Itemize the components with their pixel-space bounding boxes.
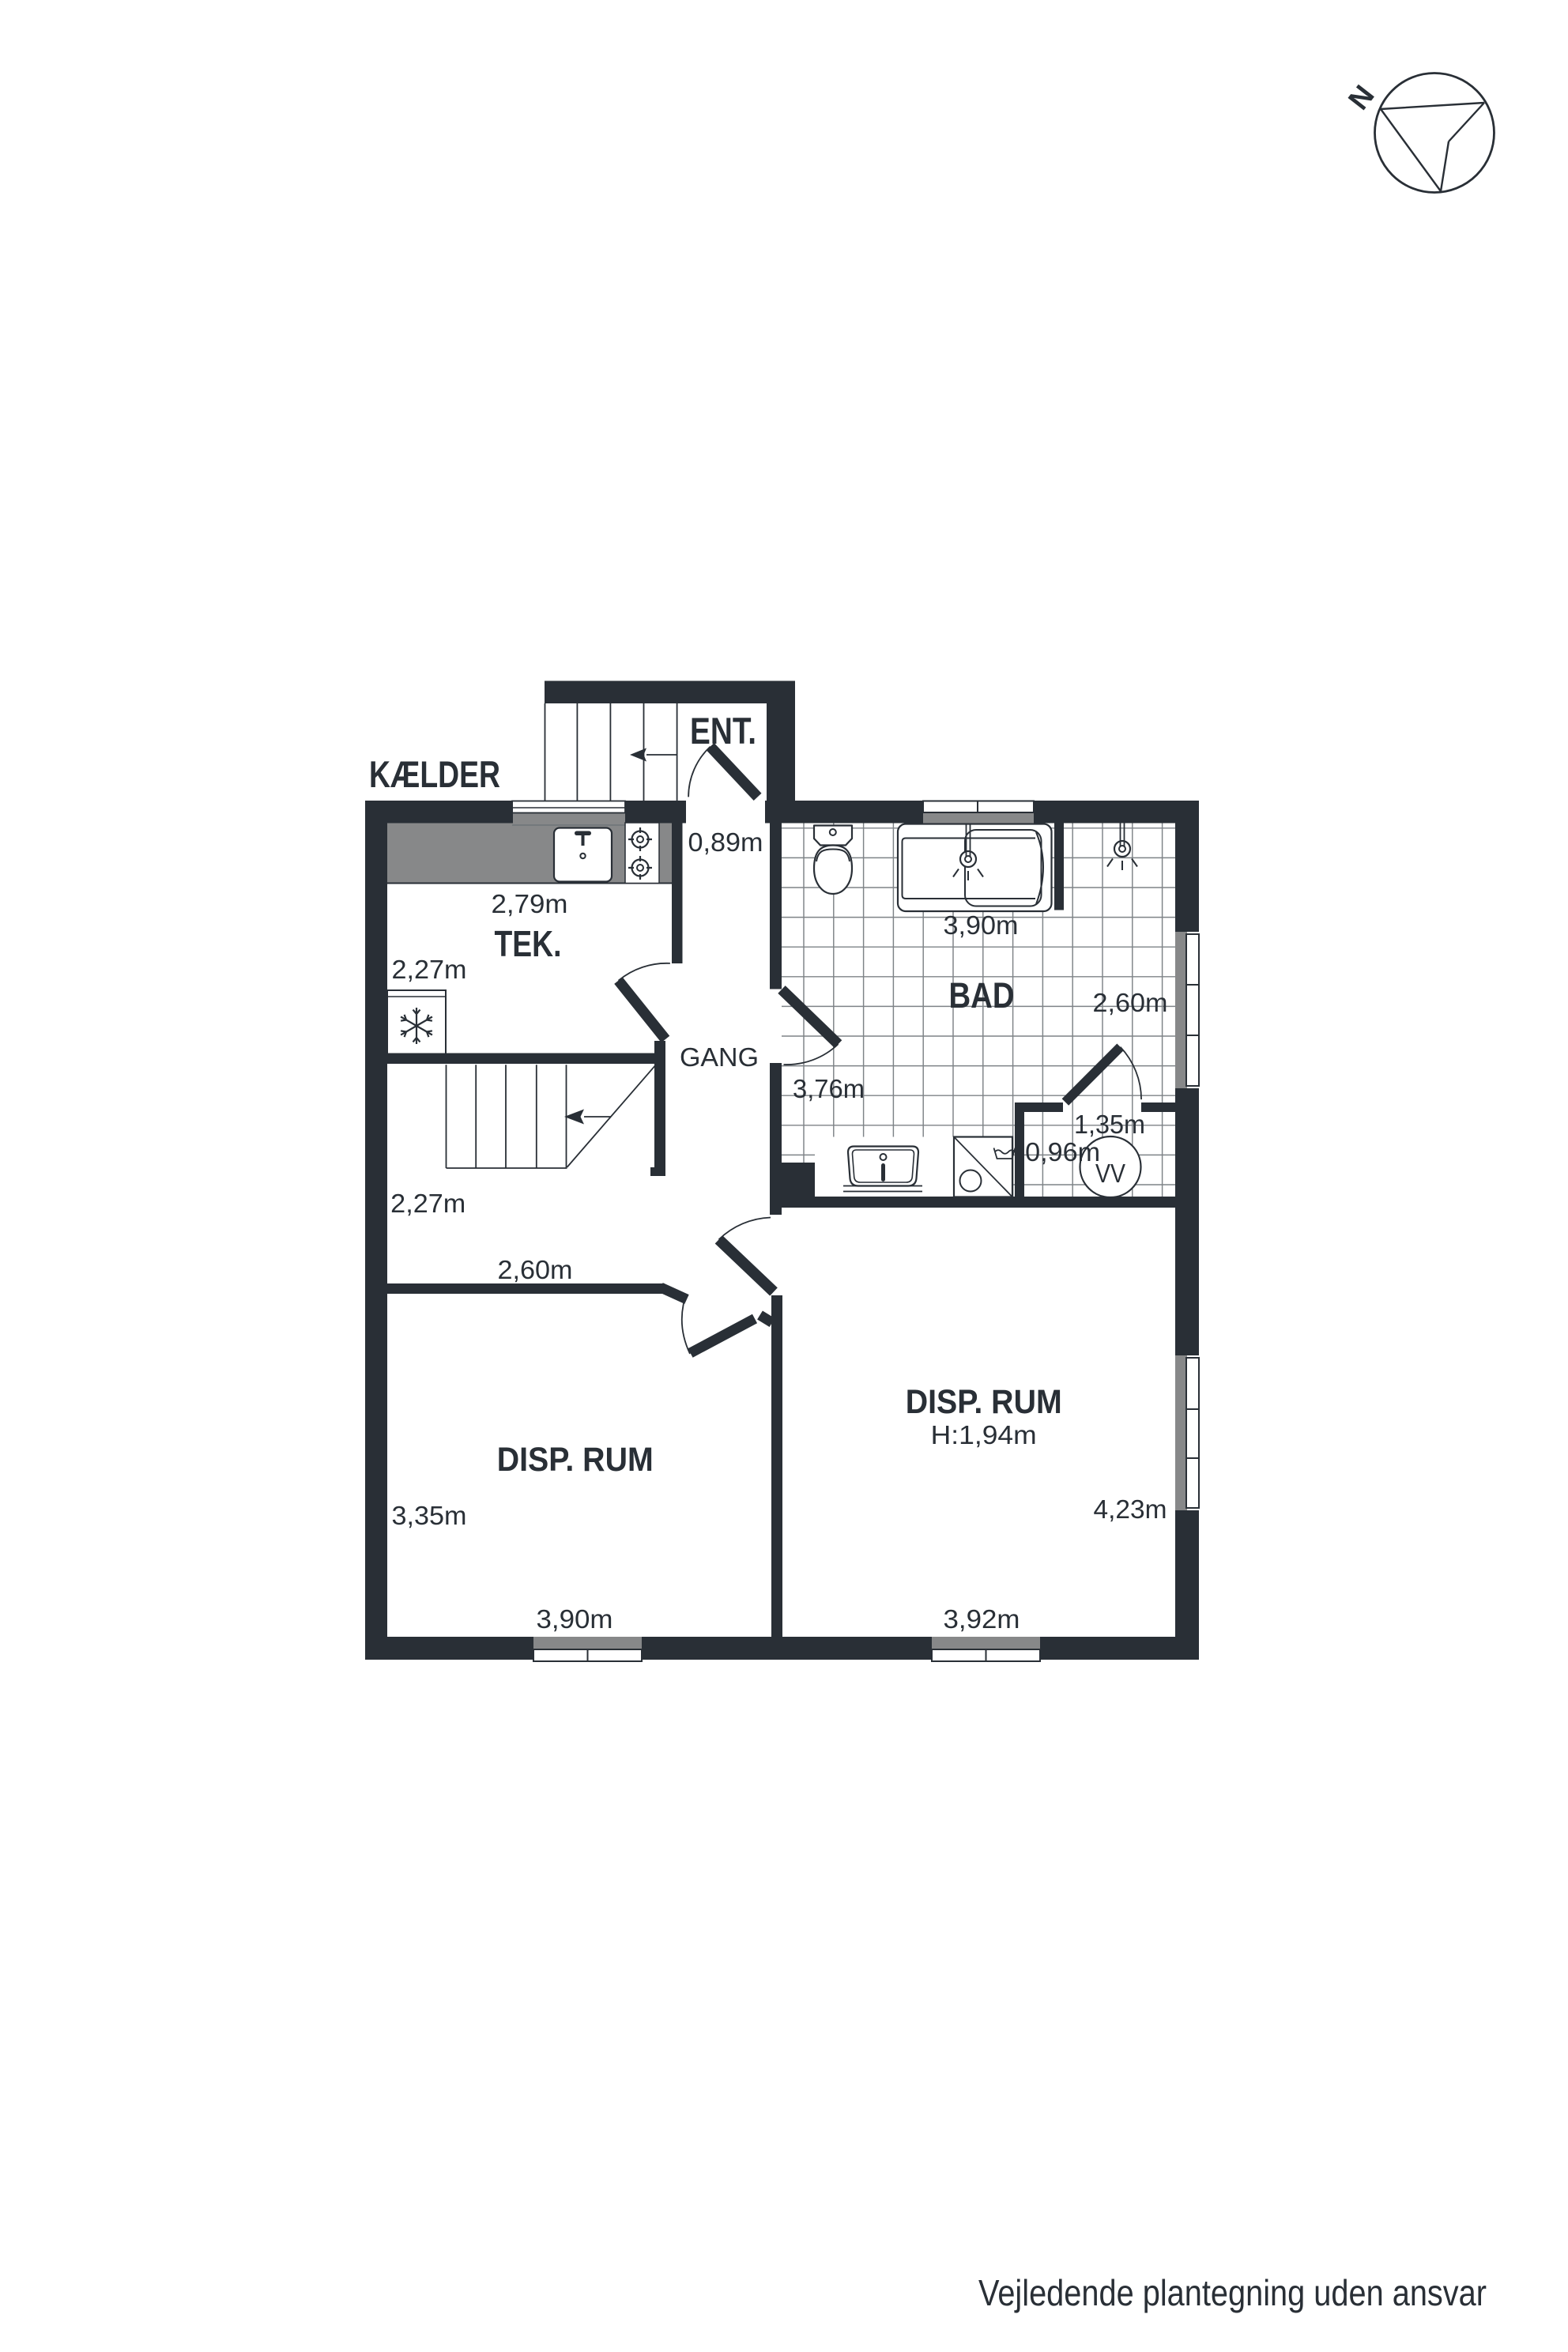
svg-text:Vejledende plantegning uden an: Vejledende plantegning uden ansvar <box>978 2272 1487 2313</box>
svg-text:DISP. RUM: DISP. RUM <box>497 1441 654 1479</box>
svg-text:3,90m: 3,90m <box>944 910 1019 940</box>
svg-text:2,79m: 2,79m <box>492 889 568 918</box>
svg-text:3,90m: 3,90m <box>537 1604 613 1634</box>
svg-text:GANG: GANG <box>680 1042 759 1072</box>
svg-text:3,76m: 3,76m <box>793 1074 865 1103</box>
svg-text:BAD: BAD <box>949 975 1015 1016</box>
svg-text:2,27m: 2,27m <box>392 955 467 984</box>
svg-text:0,96m: 0,96m <box>1025 1137 1100 1167</box>
svg-text:4,23m: 4,23m <box>1094 1494 1167 1524</box>
svg-text:KÆLDER: KÆLDER <box>369 753 500 795</box>
svg-text:1,35m: 1,35m <box>1074 1110 1145 1139</box>
svg-text:0,89m: 0,89m <box>688 827 763 857</box>
svg-text:2,27m: 2,27m <box>390 1189 465 1218</box>
svg-text:2,60m: 2,60m <box>1093 988 1168 1017</box>
svg-text:3,35m: 3,35m <box>392 1501 467 1530</box>
svg-text:2,60m: 2,60m <box>498 1255 573 1284</box>
svg-text:DISP. RUM: DISP. RUM <box>906 1383 1062 1421</box>
svg-text:H:1,94m: H:1,94m <box>931 1420 1037 1449</box>
svg-text:ENT.: ENT. <box>690 710 756 752</box>
svg-text:TEK.: TEK. <box>495 923 562 964</box>
svg-text:3,92m: 3,92m <box>944 1604 1020 1634</box>
svg-text:VV: VV <box>1095 1159 1125 1188</box>
